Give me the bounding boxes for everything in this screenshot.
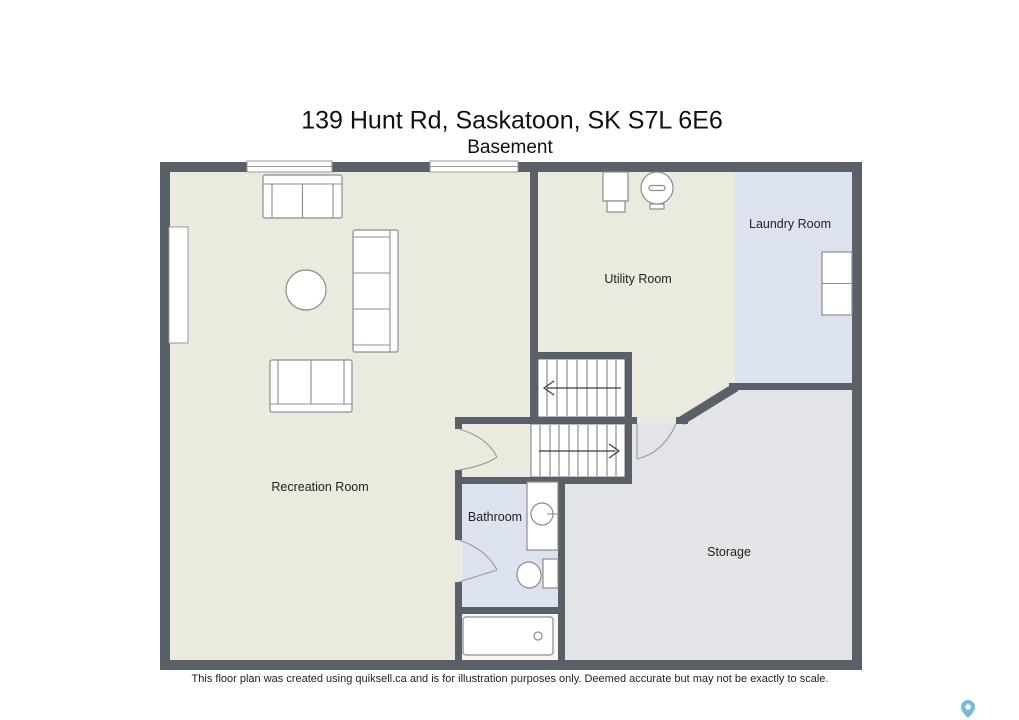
stairs-upper-flight (538, 359, 625, 417)
room-label-utility: Utility Room (604, 272, 671, 286)
loveseat-top-icon (263, 175, 342, 218)
bathtub-icon (463, 617, 553, 655)
wall-hall-left-upper (455, 417, 462, 429)
map-pin-icon (961, 700, 975, 718)
wall-mid-horizontal (455, 417, 637, 424)
window-top-2 (430, 161, 518, 172)
room-label-bathroom: Bathroom (468, 510, 522, 524)
sofa-right-icon (353, 230, 398, 352)
wall-bathroom-right (558, 477, 565, 660)
laundry-fixtures (822, 252, 852, 315)
wall-utility-left (530, 172, 538, 424)
plan-subtitle: Basement (467, 137, 553, 159)
window-left (169, 227, 188, 343)
loveseat-bottom-icon (270, 360, 352, 412)
stairs-lower-flight (531, 424, 625, 477)
furnace-icon (603, 172, 628, 212)
wall-tub-separator (455, 607, 565, 614)
wall-bottom (160, 660, 862, 670)
plan-title: 139 Hunt Rd, Saskatoon, SK S7L 6E6 (301, 107, 723, 136)
disclaimer: This floor plan was created using quikse… (192, 673, 829, 685)
room-label-laundry: Laundry Room (749, 217, 831, 231)
washer-dryer-icon (822, 252, 852, 315)
wall-bathroom-left-lower (455, 582, 462, 660)
round-table-icon (286, 270, 326, 310)
wall-stairs-top (530, 352, 632, 359)
wall-right (852, 162, 862, 670)
wall-laundry-bottom (729, 383, 852, 390)
room-label-storage: Storage (707, 545, 751, 559)
room-label-recreation: Recreation Room (271, 480, 368, 494)
window-top-1 (247, 161, 332, 172)
floor-regions (170, 172, 852, 660)
vanity-sink-icon (527, 482, 558, 550)
wall-hall-left-mid (455, 470, 462, 540)
